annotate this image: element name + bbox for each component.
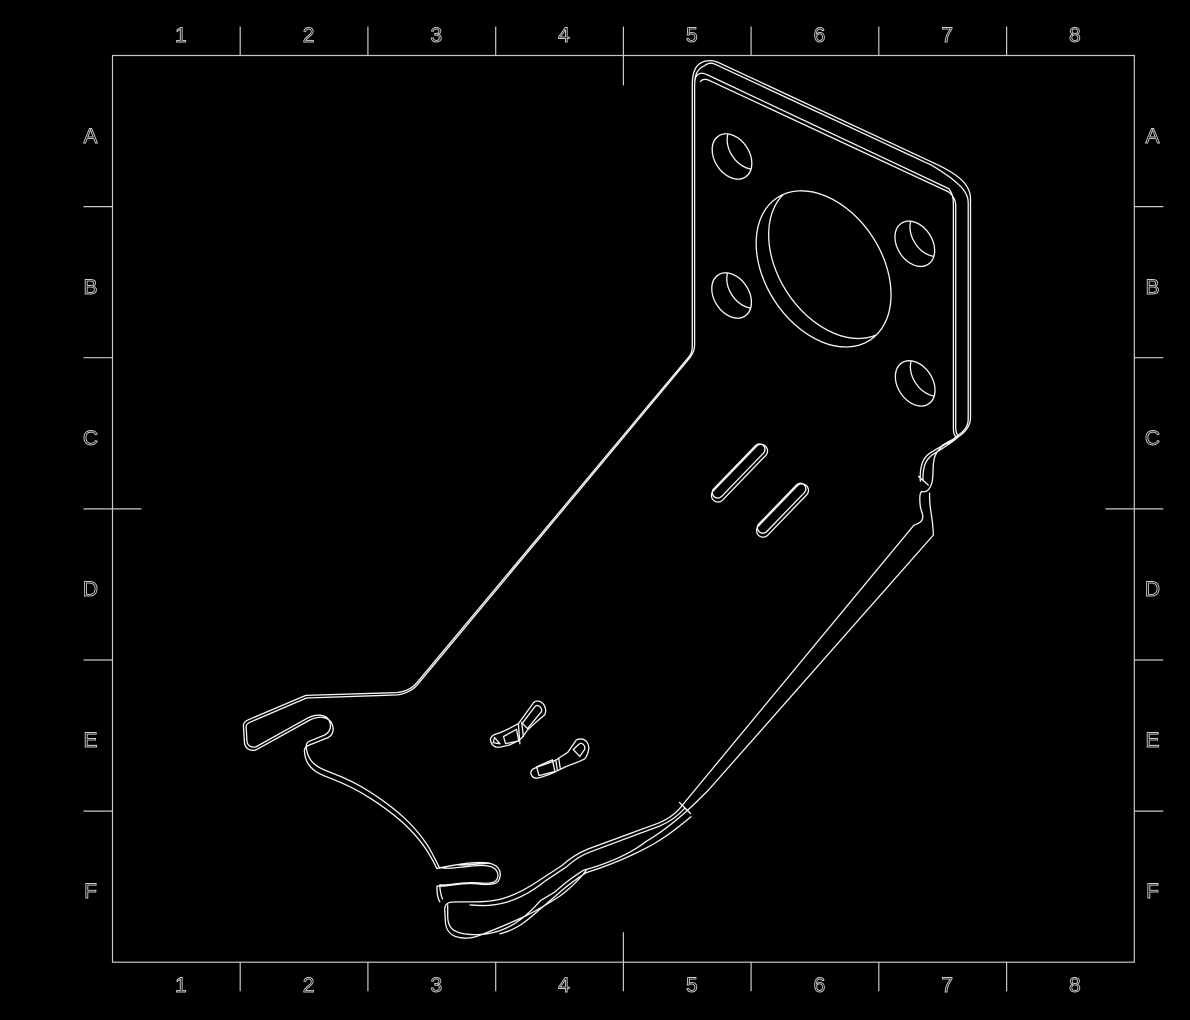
- svg-text:A: A: [1145, 125, 1159, 148]
- svg-text:5: 5: [686, 24, 698, 47]
- svg-text:D: D: [1145, 578, 1160, 601]
- svg-text:4: 4: [558, 974, 570, 997]
- svg-text:2: 2: [303, 974, 315, 997]
- svg-text:B: B: [83, 276, 97, 299]
- svg-text:6: 6: [814, 974, 826, 997]
- svg-text:F: F: [1146, 880, 1159, 903]
- svg-text:8: 8: [1069, 974, 1081, 997]
- svg-text:E: E: [83, 729, 97, 752]
- svg-text:C: C: [1145, 427, 1160, 450]
- svg-text:2: 2: [303, 24, 315, 47]
- svg-text:A: A: [83, 125, 97, 148]
- svg-text:8: 8: [1069, 24, 1081, 47]
- svg-text:D: D: [83, 578, 98, 601]
- svg-text:5: 5: [686, 974, 698, 997]
- svg-text:1: 1: [175, 24, 187, 47]
- svg-text:B: B: [1145, 276, 1159, 299]
- svg-text:6: 6: [814, 24, 826, 47]
- svg-text:E: E: [1145, 729, 1159, 752]
- svg-text:3: 3: [430, 974, 442, 997]
- svg-text:C: C: [83, 427, 98, 450]
- svg-text:4: 4: [558, 24, 570, 47]
- svg-text:3: 3: [430, 24, 442, 47]
- svg-text:7: 7: [941, 974, 953, 997]
- svg-text:1: 1: [175, 974, 187, 997]
- svg-text:F: F: [84, 880, 97, 903]
- svg-text:7: 7: [941, 24, 953, 47]
